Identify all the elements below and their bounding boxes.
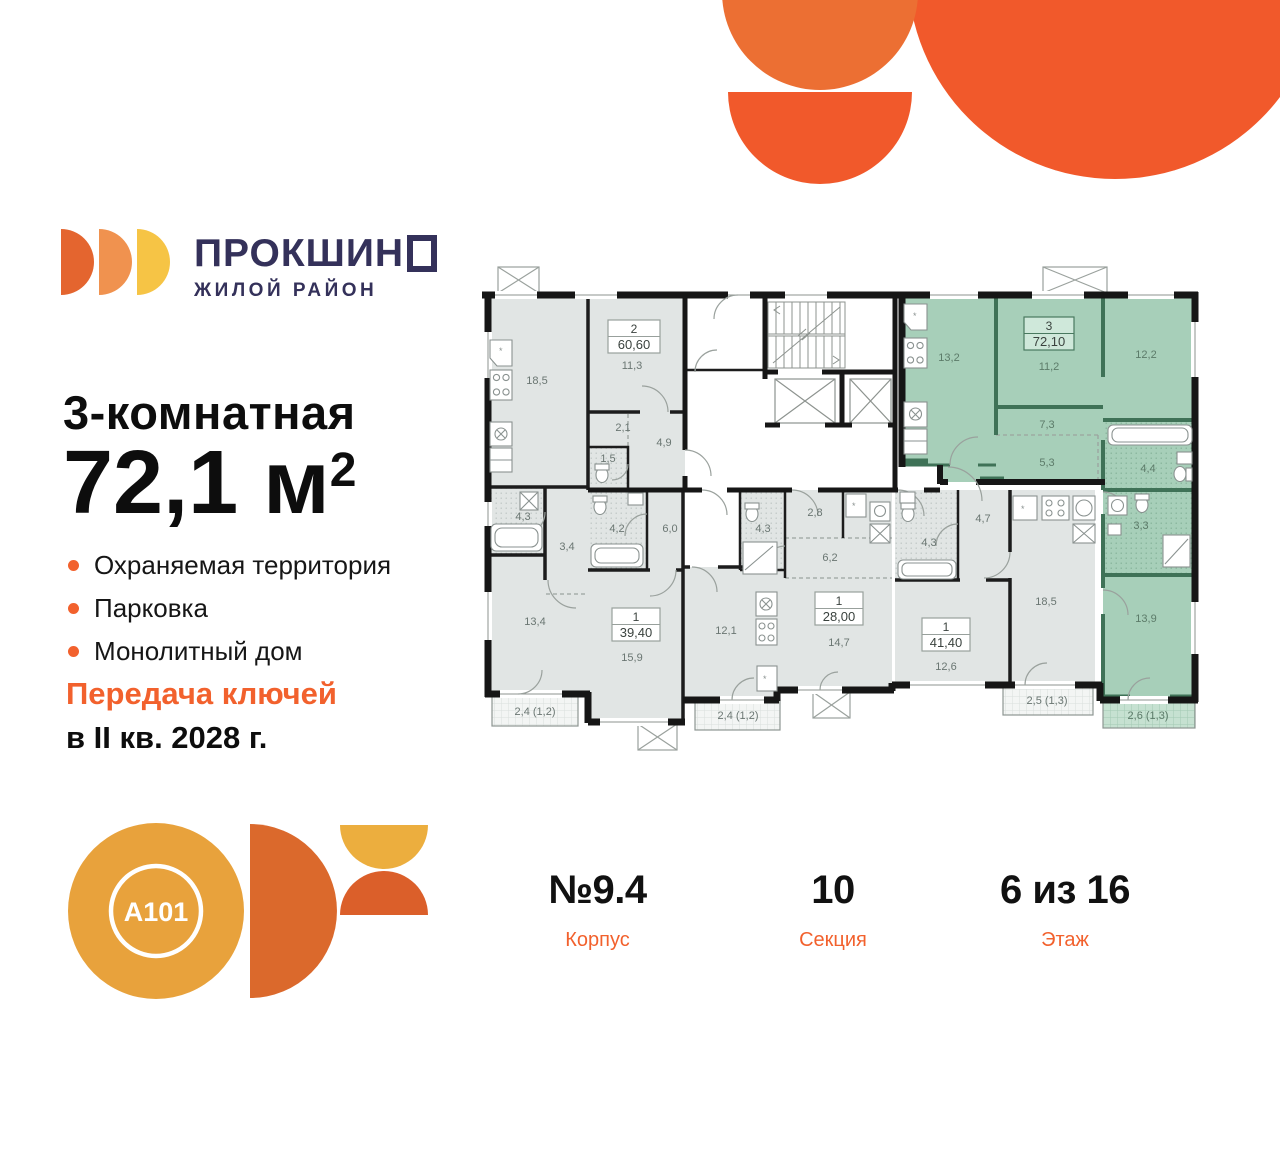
stat-floor: 6 из 16 Этаж: [965, 868, 1165, 952]
stat-section: 10 Секция: [763, 868, 903, 952]
brand-logo-marks: [60, 228, 172, 296]
decor-shapes: [700, 0, 1280, 195]
svg-text:12,1: 12,1: [715, 625, 736, 637]
svg-text:7,3: 7,3: [1039, 419, 1054, 431]
listing-area: 72,1 м2: [63, 438, 356, 528]
stat-building-value: №9.4: [515, 868, 680, 913]
developer-logo-text: A101: [124, 897, 189, 927]
feature-item: Парковка: [68, 593, 391, 624]
apartment-box-1room-a: 1 39,40: [612, 608, 660, 641]
developer-logo: A101: [68, 823, 433, 1003]
feature-label: Монолитный дом: [94, 636, 303, 667]
feature-label: Парковка: [94, 593, 208, 624]
svg-text:3,4: 3,4: [559, 541, 574, 553]
svg-text:2,6 (1,3): 2,6 (1,3): [1128, 710, 1169, 722]
svg-text:6,0: 6,0: [662, 523, 677, 535]
stat-section-label: Секция: [763, 929, 903, 952]
svg-text:1: 1: [836, 594, 843, 608]
stat-building: №9.4 Корпус: [515, 868, 680, 952]
feature-label: Охраняемая территория: [94, 550, 391, 581]
svg-text:11,2: 11,2: [1039, 361, 1060, 373]
svg-text:12,2: 12,2: [1135, 349, 1156, 361]
brand-logo: ПРОКШИН ЖИЛОЙ РАЙОН: [60, 228, 437, 302]
svg-text:*: *: [1021, 504, 1025, 514]
handover-line1: Передача ключей: [66, 676, 337, 712]
area-value: 72,1: [63, 433, 238, 533]
svg-text:15,9: 15,9: [621, 652, 642, 664]
svg-text:*: *: [499, 346, 503, 356]
stat-building-label: Корпус: [515, 929, 680, 952]
svg-text:2,8: 2,8: [807, 507, 822, 519]
stat-floor-value: 6 из 16: [965, 868, 1165, 913]
decor-semicircle-top: [722, 0, 918, 90]
stat-floor-label: Этаж: [965, 929, 1165, 952]
decor-semicircle-bottom: [728, 92, 912, 184]
brand-name-text: ПРОКШИН: [194, 234, 404, 273]
svg-text:11,3: 11,3: [622, 360, 643, 372]
svg-text:6,2: 6,2: [822, 552, 837, 564]
svg-text:2,5 (1,3): 2,5 (1,3): [1027, 695, 1068, 707]
bullet-icon: [68, 560, 79, 571]
brand-name: ПРОКШИН: [194, 234, 437, 273]
svg-text:14,7: 14,7: [828, 637, 849, 649]
svg-text:2,4 (1,2): 2,4 (1,2): [515, 706, 556, 718]
area-exponent: 2: [330, 444, 357, 497]
svg-text:4,7: 4,7: [975, 513, 990, 525]
stat-section-value: 10: [763, 868, 903, 913]
bullet-icon: [68, 646, 79, 657]
svg-text:4,3: 4,3: [921, 537, 936, 549]
apartment-box-1room-c: 1 41,40: [922, 618, 970, 651]
elevators: [775, 379, 891, 423]
brand-letter-o: [407, 235, 437, 272]
svg-text:*: *: [763, 674, 767, 684]
svg-text:5,3: 5,3: [1039, 457, 1054, 469]
decor-big-circle: [908, 0, 1280, 179]
feature-item: Охраняемая территория: [68, 550, 391, 581]
svg-text:18,5: 18,5: [526, 375, 547, 387]
apartment-box-3room: 3 72,10: [1024, 317, 1074, 350]
feature-list: Охраняемая территория Парковка Монолитны…: [68, 550, 391, 679]
svg-text:39,40: 39,40: [620, 625, 653, 640]
svg-text:3,3: 3,3: [1133, 520, 1148, 532]
svg-text:18,5: 18,5: [1035, 596, 1056, 608]
svg-text:4,3: 4,3: [515, 511, 530, 523]
svg-text:28,00: 28,00: [823, 609, 856, 624]
svg-text:1: 1: [943, 620, 950, 634]
area-unit: м: [238, 433, 330, 533]
stairwell: [768, 302, 845, 368]
svg-text:*: *: [852, 501, 856, 511]
bullet-icon: [68, 603, 79, 614]
svg-text:1: 1: [633, 610, 640, 624]
svg-text:13,4: 13,4: [524, 616, 545, 628]
svg-text:1,5: 1,5: [600, 453, 615, 465]
flyer: ПРОКШИН ЖИЛОЙ РАЙОН 3-комнатная 72,1 м2 …: [0, 0, 1280, 1160]
svg-text:2,4 (1,2): 2,4 (1,2): [718, 710, 759, 722]
svg-text:41,40: 41,40: [930, 635, 963, 650]
svg-text:4,3: 4,3: [755, 523, 770, 535]
listing-headline: 3-комнатная: [63, 385, 356, 440]
svg-text:4,9: 4,9: [656, 437, 671, 449]
svg-text:3: 3: [1046, 319, 1053, 333]
svg-text:4,2: 4,2: [609, 523, 624, 535]
svg-text:72,10: 72,10: [1033, 334, 1066, 349]
svg-text:13,9: 13,9: [1135, 613, 1156, 625]
svg-text:12,6: 12,6: [935, 661, 956, 673]
brand-tagline: ЖИЛОЙ РАЙОН: [194, 280, 437, 302]
handover-line2: в II кв. 2028 г.: [66, 720, 267, 756]
apartment-box-2room: 2 60,60: [608, 320, 660, 353]
apartment-box-1room-b: 1 28,00: [815, 592, 863, 625]
svg-text:4,4: 4,4: [1140, 463, 1155, 475]
feature-item: Монолитный дом: [68, 636, 391, 667]
svg-text:*: *: [913, 311, 917, 321]
floor-plan: * * * *: [480, 262, 1200, 762]
svg-text:2,1: 2,1: [615, 422, 630, 434]
svg-text:60,60: 60,60: [618, 337, 651, 352]
svg-text:13,2: 13,2: [938, 352, 959, 364]
svg-text:2: 2: [631, 322, 638, 336]
